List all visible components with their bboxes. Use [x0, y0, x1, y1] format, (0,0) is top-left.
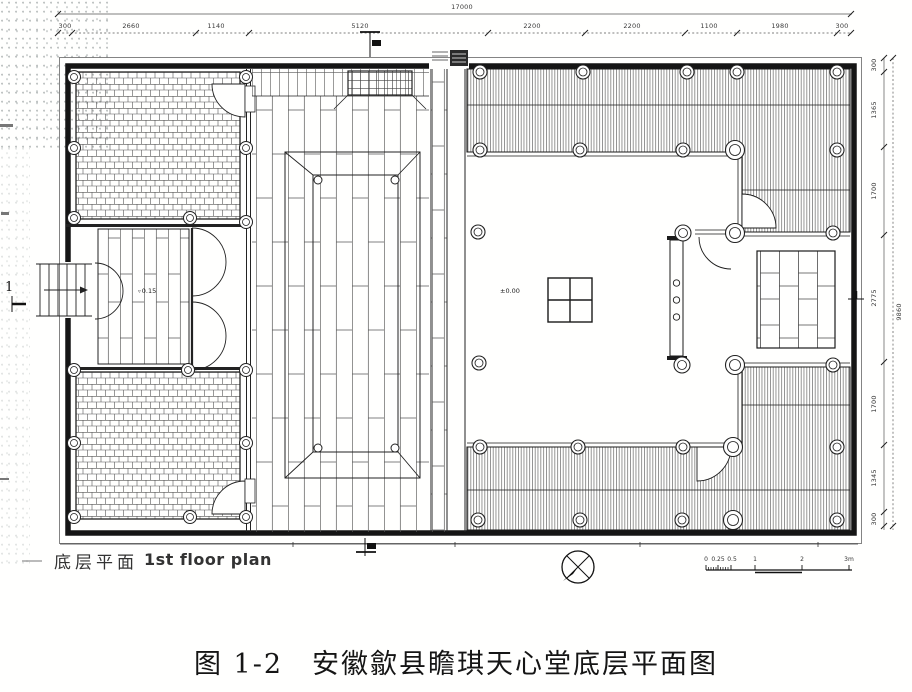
door-arc — [192, 228, 226, 370]
veranda-bottom — [467, 367, 850, 530]
scale-label: 0.25 — [711, 556, 724, 563]
scale-label: 0.5 — [727, 556, 737, 563]
scale-bar — [706, 565, 852, 573]
courtyard-elevation-label: ±0.00 — [500, 287, 520, 295]
plan-title-cn: 底层平面 — [54, 548, 138, 573]
veranda-top — [467, 69, 850, 232]
courtyard — [467, 69, 850, 530]
courtyard-well — [548, 278, 592, 322]
figure-caption: 图 1-2 安徽歙县瞻琪天心堂底层平面图 — [0, 642, 912, 681]
dim-top-segment: 300 — [835, 22, 848, 30]
screen-panel — [667, 236, 687, 360]
section-cut-marker-top — [360, 32, 381, 57]
dim-right-segment: 1365 — [870, 101, 878, 118]
scale-label: 3m — [844, 556, 854, 563]
dim-top-segment: 300 — [58, 22, 71, 30]
dim-top-segment: 2660 — [122, 22, 139, 30]
scale-label: 0 — [704, 556, 708, 563]
dim-right-segment: 300 — [870, 58, 878, 71]
section-number-left: 1 — [5, 280, 13, 295]
section-cut-marker-left — [12, 296, 26, 312]
dim-right-segment: 300 — [870, 512, 878, 525]
dim-top-segment: 2200 — [523, 22, 540, 30]
dim-top-segment: 5120 — [351, 22, 368, 30]
dim-top-total: 17000 — [451, 3, 473, 11]
dim-right-segment: 1700 — [870, 395, 878, 412]
central-hall — [252, 69, 465, 532]
door-arc — [699, 237, 731, 269]
dim-right-total: 9860 — [895, 303, 903, 320]
plan-drawing — [0, 0, 912, 692]
dim-right-segment: 1345 — [870, 469, 878, 486]
entry-arrow-head — [80, 287, 88, 294]
dim-top-segment: 1980 — [771, 22, 788, 30]
dim-right-segment: 1700 — [870, 182, 878, 199]
plan-title-en: 1st floor plan — [144, 550, 272, 569]
scale-label: 2 — [800, 556, 804, 563]
section-cut-marker-bottom — [356, 538, 376, 556]
right-room — [757, 251, 835, 348]
scale-label: 1 — [753, 556, 757, 563]
dim-top-segment: 2200 — [623, 22, 640, 30]
dim-top-segment: 1140 — [207, 22, 224, 30]
dim-top-segment: 1100 — [700, 22, 717, 30]
hall-elevation-label: 0.15 — [138, 287, 156, 295]
north-arrow-icon — [562, 551, 594, 583]
dim-right-segment: 2775 — [870, 289, 878, 306]
floor-plan-figure: 17000 300 2660 1140 5120 2200 2200 1100 … — [0, 0, 912, 692]
